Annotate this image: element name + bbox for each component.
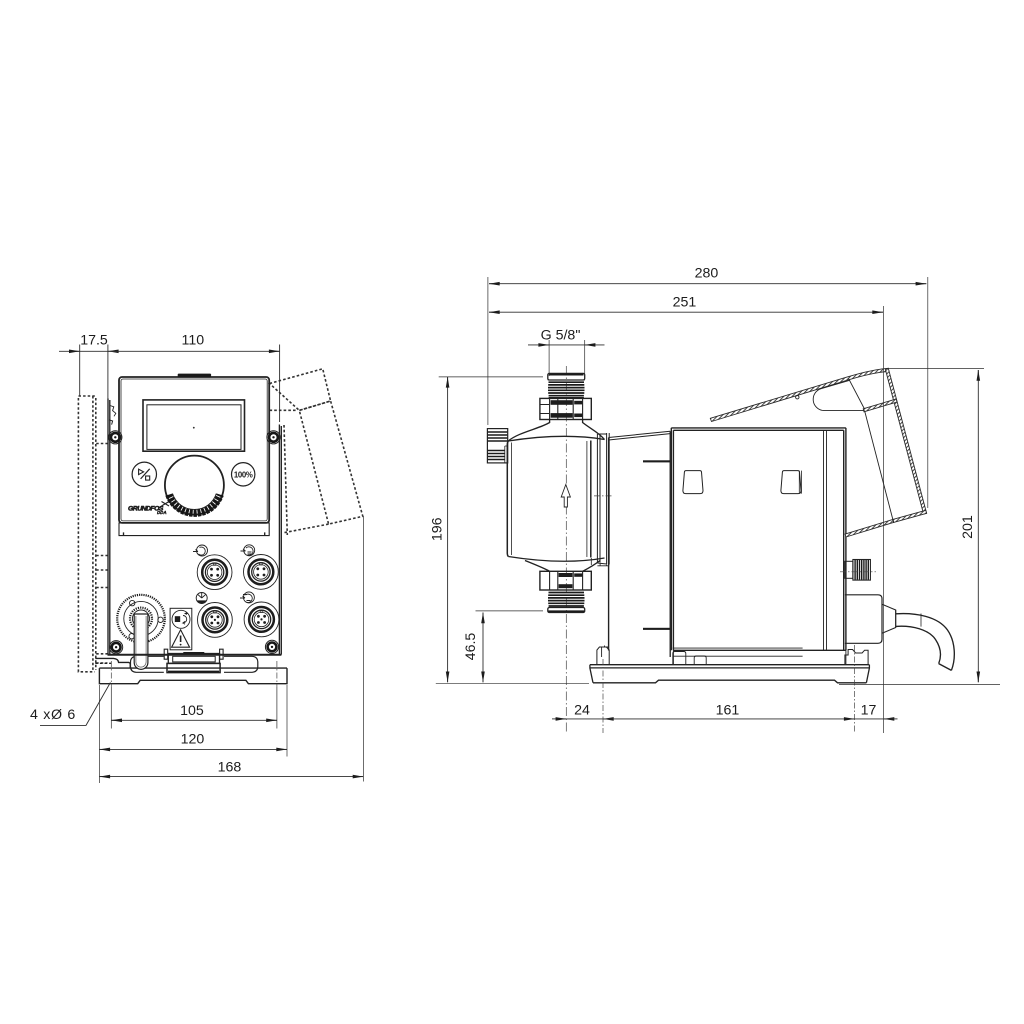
svg-text:DDA: DDA [157,510,167,515]
svg-text:17: 17 [861,703,877,719]
svg-text:46.5: 46.5 [463,633,479,661]
svg-text:4 xØ 6: 4 xØ 6 [30,707,76,723]
svg-text:100%: 100% [234,470,253,479]
svg-text:251: 251 [673,295,697,311]
svg-text:168: 168 [218,760,242,776]
svg-text:110: 110 [181,333,204,349]
svg-text:105: 105 [180,703,204,719]
svg-text:24: 24 [574,703,590,719]
svg-text:161: 161 [716,703,740,719]
svg-text:196: 196 [430,517,446,541]
svg-text:280: 280 [695,266,719,282]
svg-text:120: 120 [181,732,205,748]
svg-text:G 5/8": G 5/8" [541,327,581,343]
svg-text:17.5: 17.5 [80,333,108,349]
svg-text:201: 201 [960,515,976,539]
